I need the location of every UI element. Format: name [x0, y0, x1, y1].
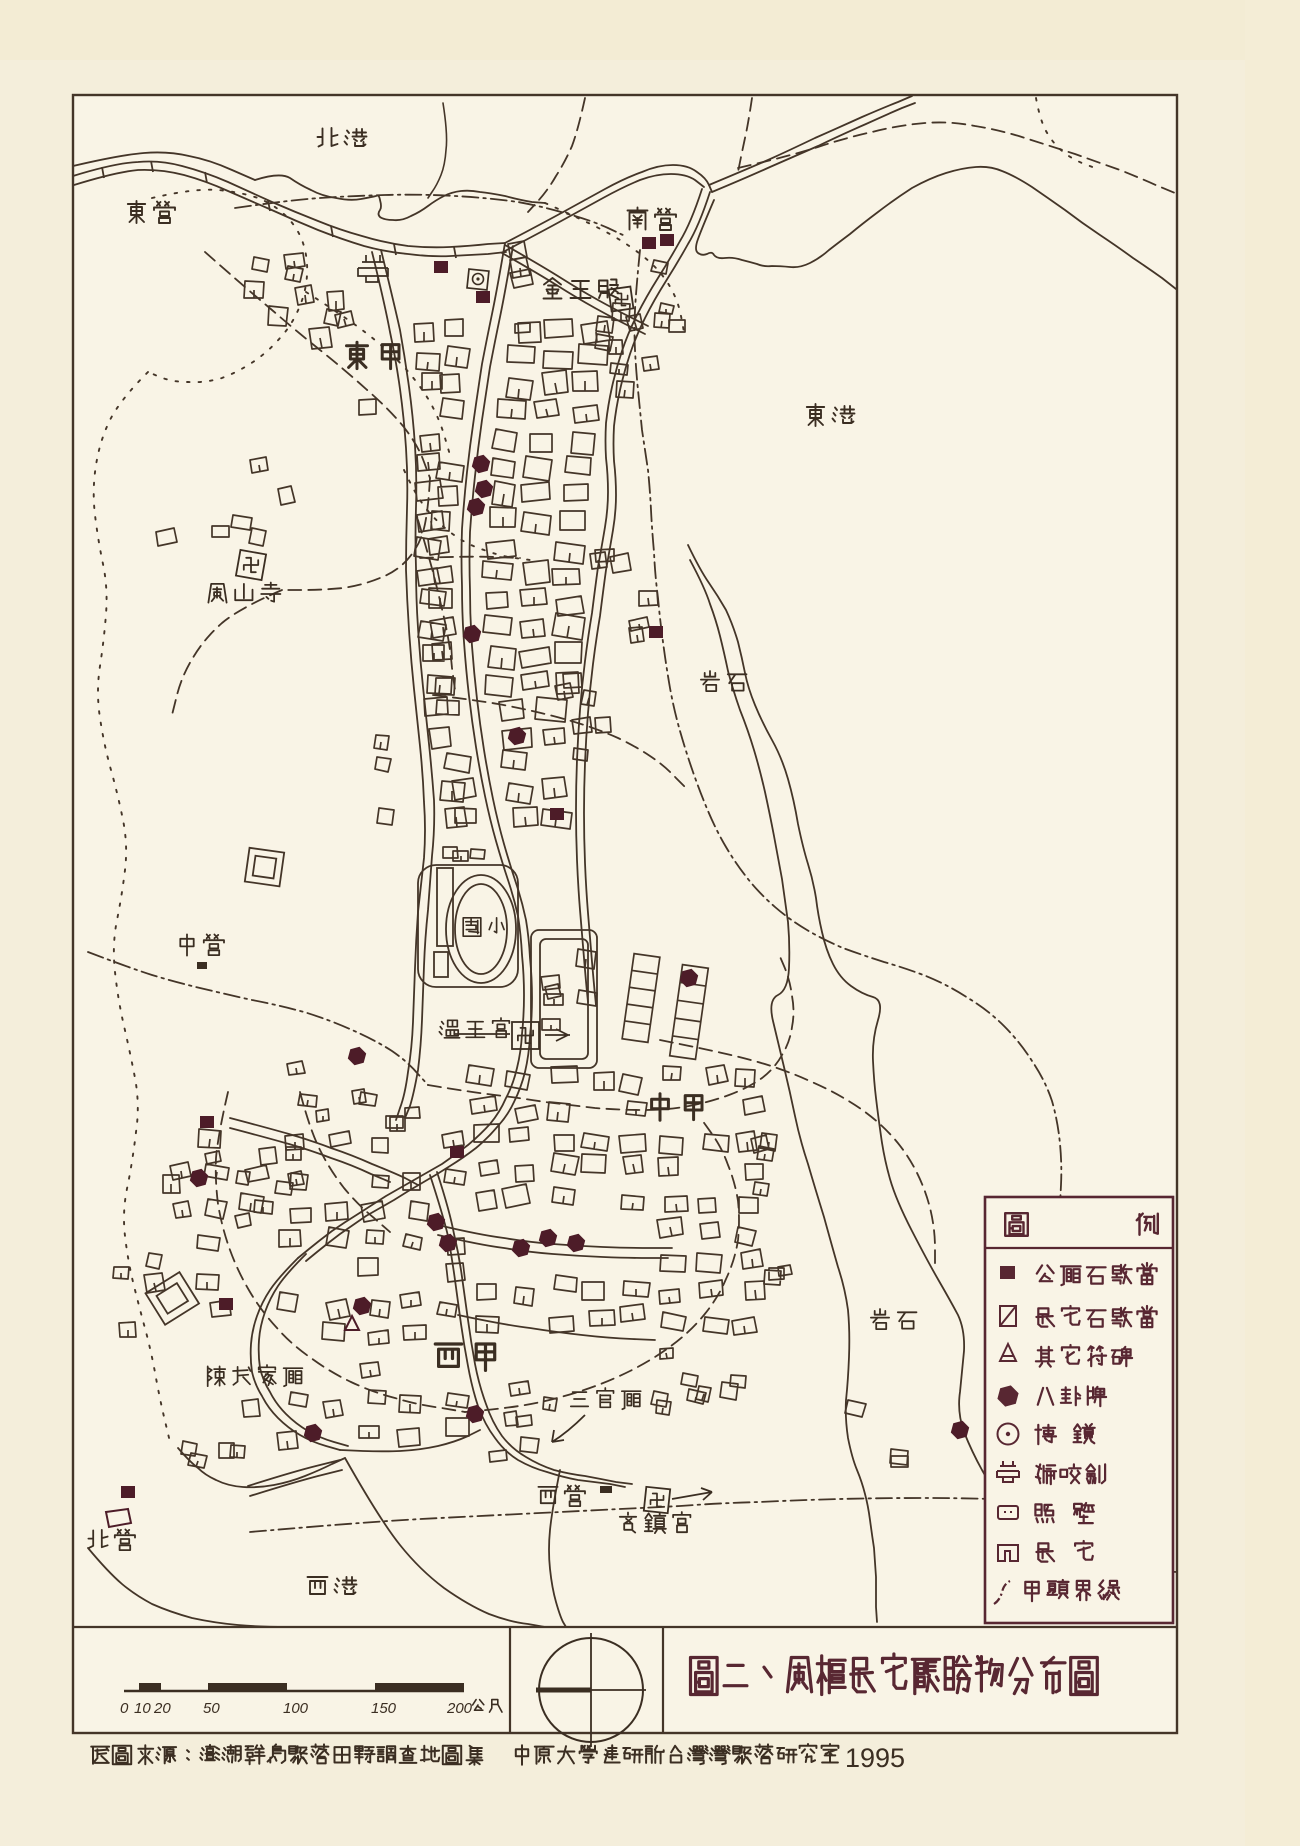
svg-text:200: 200 — [446, 1700, 473, 1717]
svg-text:0: 0 — [120, 1700, 129, 1717]
svg-text:100: 100 — [283, 1700, 309, 1717]
svg-text:20: 20 — [153, 1700, 171, 1717]
svg-text:1995: 1995 — [845, 1743, 905, 1773]
svg-text:150: 150 — [371, 1700, 397, 1717]
svg-text:10: 10 — [134, 1700, 151, 1717]
svg-text:50: 50 — [203, 1700, 220, 1717]
